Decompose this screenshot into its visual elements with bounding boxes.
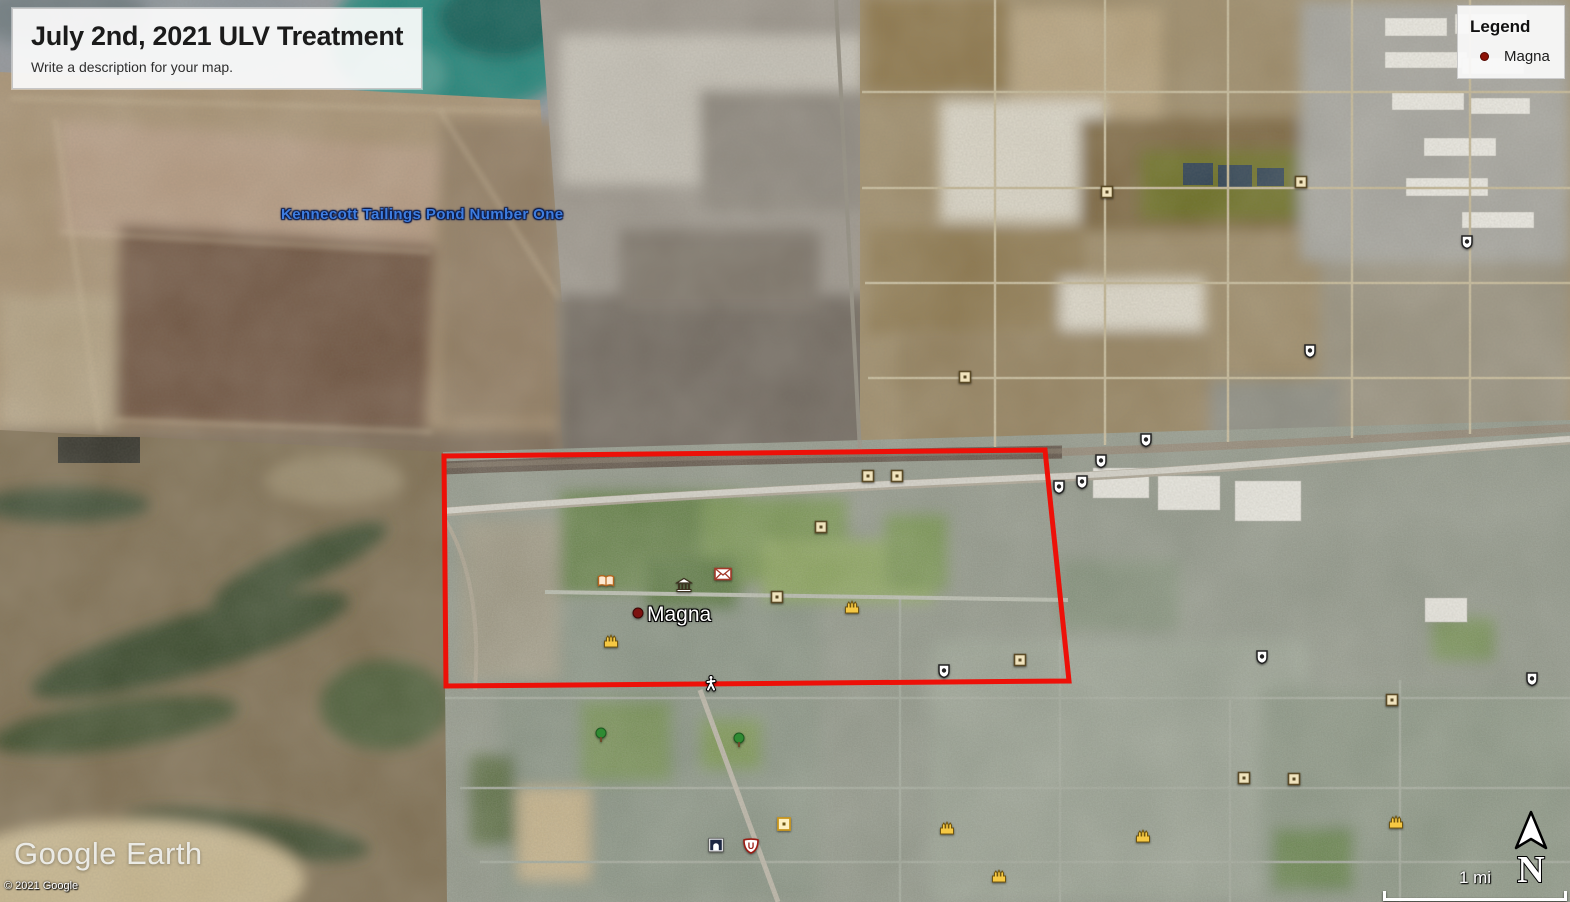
google-earth-logo: Google Earth bbox=[14, 836, 203, 872]
square-poi-icon[interactable] bbox=[1288, 773, 1301, 786]
map-viewport[interactable]: U Kennecott Tailings Pond Number OneMagn… bbox=[0, 0, 1570, 902]
route-shield-icon[interactable] bbox=[1094, 454, 1108, 469]
legend: Legend Magna bbox=[1457, 5, 1565, 79]
place-dot-icon[interactable] bbox=[632, 607, 644, 619]
route-shield-icon[interactable] bbox=[1139, 433, 1153, 448]
route-shield-icon[interactable] bbox=[937, 664, 951, 679]
map-title-box[interactable]: July 2nd, 2021 ULV Treatment Write a des… bbox=[12, 8, 422, 89]
square-poi-icon[interactable] bbox=[1101, 186, 1114, 199]
copyright-text: © 2021 Google bbox=[4, 880, 78, 892]
map-title: July 2nd, 2021 ULV Treatment bbox=[31, 21, 403, 52]
legend-items: Magna bbox=[1470, 48, 1550, 65]
legend-item-magna: Magna bbox=[1470, 48, 1550, 65]
route-shield-icon[interactable] bbox=[1460, 235, 1474, 250]
square-poi-icon[interactable] bbox=[1295, 176, 1308, 189]
square-poi-icon[interactable] bbox=[891, 470, 904, 483]
legend-marker-icon bbox=[1480, 52, 1489, 61]
park-tree-icon[interactable] bbox=[595, 728, 608, 743]
yellow-square-icon[interactable] bbox=[777, 817, 791, 831]
scale-bar-label: 1 mi bbox=[1383, 868, 1567, 888]
park-tree-icon[interactable] bbox=[733, 733, 746, 748]
square-poi-icon[interactable] bbox=[1386, 694, 1399, 707]
route-shield-icon[interactable] bbox=[1075, 475, 1089, 490]
temple-icon[interactable] bbox=[939, 821, 956, 835]
square-poi-icon[interactable] bbox=[815, 521, 828, 534]
route-shield-icon[interactable] bbox=[1303, 344, 1317, 359]
scale-bar-rule bbox=[1383, 891, 1567, 901]
book-icon[interactable] bbox=[598, 575, 615, 588]
mail-icon[interactable] bbox=[714, 568, 732, 581]
u-shield-icon[interactable]: U bbox=[743, 838, 760, 854]
svg-text:U: U bbox=[748, 841, 755, 851]
kennecott-tailings-pond-label: Kennecott Tailings Pond Number One bbox=[281, 206, 564, 223]
scale-bar: 1 mi bbox=[1383, 868, 1567, 901]
legend-title: Legend bbox=[1470, 17, 1550, 37]
square-poi-icon[interactable] bbox=[862, 470, 875, 483]
museum-icon[interactable] bbox=[676, 578, 693, 593]
square-poi-icon[interactable] bbox=[771, 591, 784, 604]
square-poi-icon[interactable] bbox=[1238, 772, 1251, 785]
square-poi-icon[interactable] bbox=[1014, 654, 1027, 667]
temple-icon[interactable] bbox=[603, 634, 620, 648]
magna-place-label[interactable]: Magna bbox=[647, 603, 711, 627]
route-shield-icon[interactable] bbox=[1052, 480, 1066, 495]
square-poi-icon[interactable] bbox=[959, 371, 972, 384]
satellite-imagery bbox=[0, 0, 1570, 902]
route-shield-icon[interactable] bbox=[1255, 650, 1269, 665]
map-description-placeholder[interactable]: Write a description for your map. bbox=[31, 59, 403, 75]
legend-item-label: Magna bbox=[1504, 48, 1550, 65]
route-shield-icon[interactable] bbox=[1525, 672, 1539, 687]
building-dark-icon[interactable] bbox=[708, 838, 724, 853]
temple-icon[interactable] bbox=[1388, 815, 1405, 829]
temple-icon[interactable] bbox=[991, 869, 1008, 883]
pedestrian-icon[interactable] bbox=[705, 675, 718, 692]
temple-icon[interactable] bbox=[844, 600, 861, 614]
temple-icon[interactable] bbox=[1135, 829, 1152, 843]
